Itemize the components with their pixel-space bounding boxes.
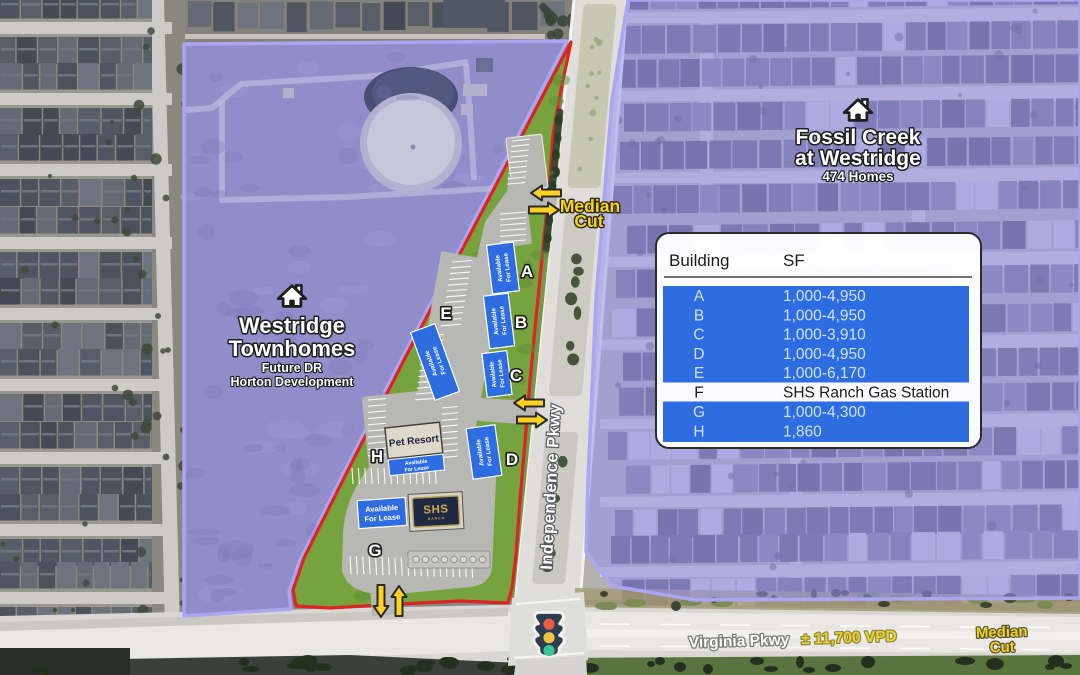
svg-text:± 11,700 VPD: ± 11,700 VPD [801,628,897,648]
svg-text:D: D [506,450,518,469]
svg-text:1,000-4,950: 1,000-4,950 [783,346,866,363]
svg-text:E: E [694,365,704,382]
svg-text:Building: Building [669,251,730,270]
svg-text:1,860: 1,860 [783,424,822,441]
svg-text:Townhomes: Townhomes [229,336,356,361]
svg-text:474 Homes: 474 Homes [822,169,893,184]
svg-text:B: B [694,307,704,324]
svg-text:A: A [694,288,705,305]
svg-text:H: H [371,447,383,466]
svg-text:B: B [515,313,527,332]
svg-text:Virginia Pkwy: Virginia Pkwy [689,631,790,651]
svg-text:D: D [693,346,704,363]
svg-text:Westridge: Westridge [239,313,345,338]
svg-text:SHS: SHS [423,503,449,516]
svg-text:Future DR: Future DR [262,361,322,375]
svg-text:E: E [440,304,451,323]
svg-text:Fossil Creek: Fossil Creek [796,126,921,149]
svg-text:H: H [693,424,704,441]
svg-text:C: C [510,366,522,385]
svg-text:G: G [693,404,705,421]
svg-text:1,000-4,300: 1,000-4,300 [783,404,866,421]
svg-text:G: G [368,541,381,560]
svg-text:at Westridge: at Westridge [795,147,921,170]
svg-text:F: F [694,385,703,402]
svg-text:C: C [693,327,704,344]
svg-text:A: A [521,262,533,281]
svg-text:1,000-6,170: 1,000-6,170 [783,365,866,382]
svg-text:1,000-4,950: 1,000-4,950 [783,288,866,305]
svg-text:Horton Development: Horton Development [231,375,355,389]
svg-text:1,000-3,910: 1,000-3,910 [783,327,866,344]
svg-text:SF: SF [783,251,805,270]
svg-text:Cut: Cut [989,639,1015,657]
svg-text:1,000-4,950: 1,000-4,950 [783,307,866,324]
svg-text:Cut: Cut [574,211,603,231]
svg-text:SHS Ranch Gas Station: SHS Ranch Gas Station [783,385,949,402]
